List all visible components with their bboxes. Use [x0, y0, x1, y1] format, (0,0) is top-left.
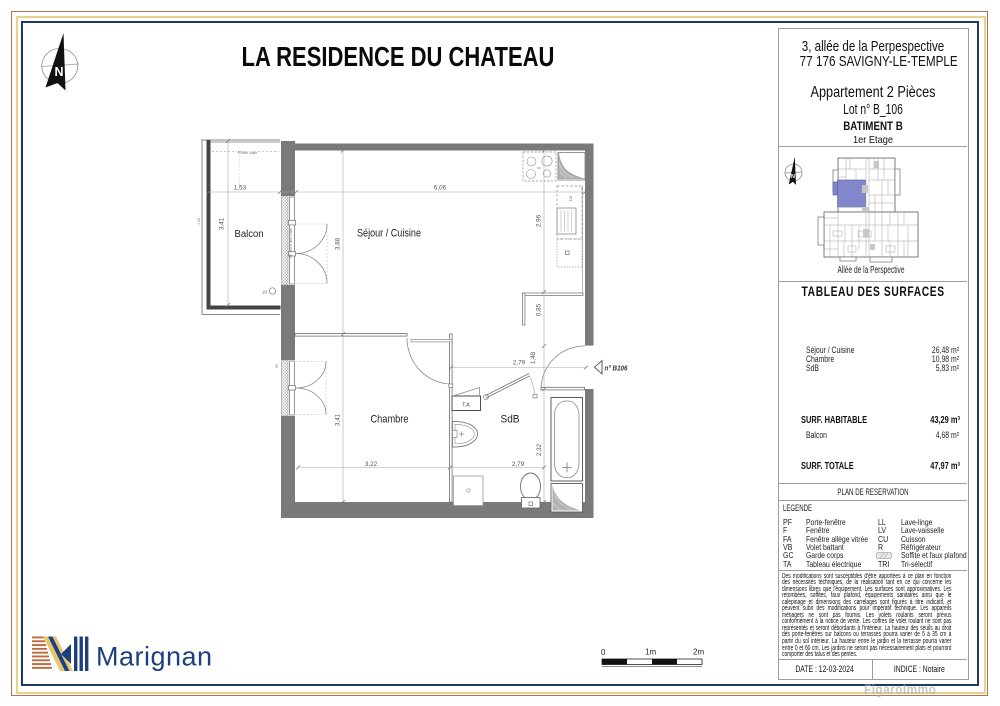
- svg-text:90: 90: [275, 364, 279, 368]
- svg-text:PF Vol.R ass Tradi: PF Vol.R ass Tradi: [289, 228, 293, 258]
- svg-text:0: 0: [601, 648, 606, 657]
- svg-text:2,96: 2,96: [536, 214, 543, 227]
- svg-text:Allée de la Perspective: Allée de la Perspective: [838, 265, 905, 276]
- svg-text:1m: 1m: [645, 648, 656, 657]
- svg-text:0,85: 0,85: [536, 303, 543, 316]
- svg-text:T.A: T.A: [462, 403, 470, 409]
- svg-text:±0: ±0: [262, 290, 267, 295]
- svg-text:cu: cu: [537, 166, 541, 170]
- svg-text:4,66: 4,66: [197, 218, 201, 225]
- svg-text:3,41: 3,41: [219, 217, 226, 230]
- svg-text:SdB: SdB: [501, 414, 520, 426]
- svg-text:Pare vue: Pare vue: [238, 150, 258, 156]
- svg-text:3,88: 3,88: [335, 237, 342, 250]
- svg-text:n° B106: n° B106: [605, 364, 629, 373]
- svg-text:Balcon: Balcon: [235, 228, 264, 240]
- svg-text:LV: LV: [568, 195, 573, 201]
- svg-text:2m: 2m: [693, 648, 704, 657]
- svg-text:3,22: 3,22: [365, 461, 378, 468]
- svg-text:Chambre: Chambre: [371, 414, 409, 426]
- svg-text:Séjour / Cuisine: Séjour / Cuisine: [357, 228, 421, 240]
- svg-text:1,53: 1,53: [234, 185, 247, 192]
- svg-text:N: N: [791, 174, 795, 180]
- svg-text:2,32: 2,32: [536, 443, 543, 456]
- svg-text:1,48: 1,48: [530, 351, 537, 364]
- svg-text:Marignan: Marignan: [96, 642, 213, 672]
- svg-text:2,79: 2,79: [513, 360, 526, 367]
- svg-text:3,41: 3,41: [335, 413, 342, 426]
- svg-text:2,79: 2,79: [512, 461, 525, 468]
- svg-text:6,06: 6,06: [434, 185, 447, 192]
